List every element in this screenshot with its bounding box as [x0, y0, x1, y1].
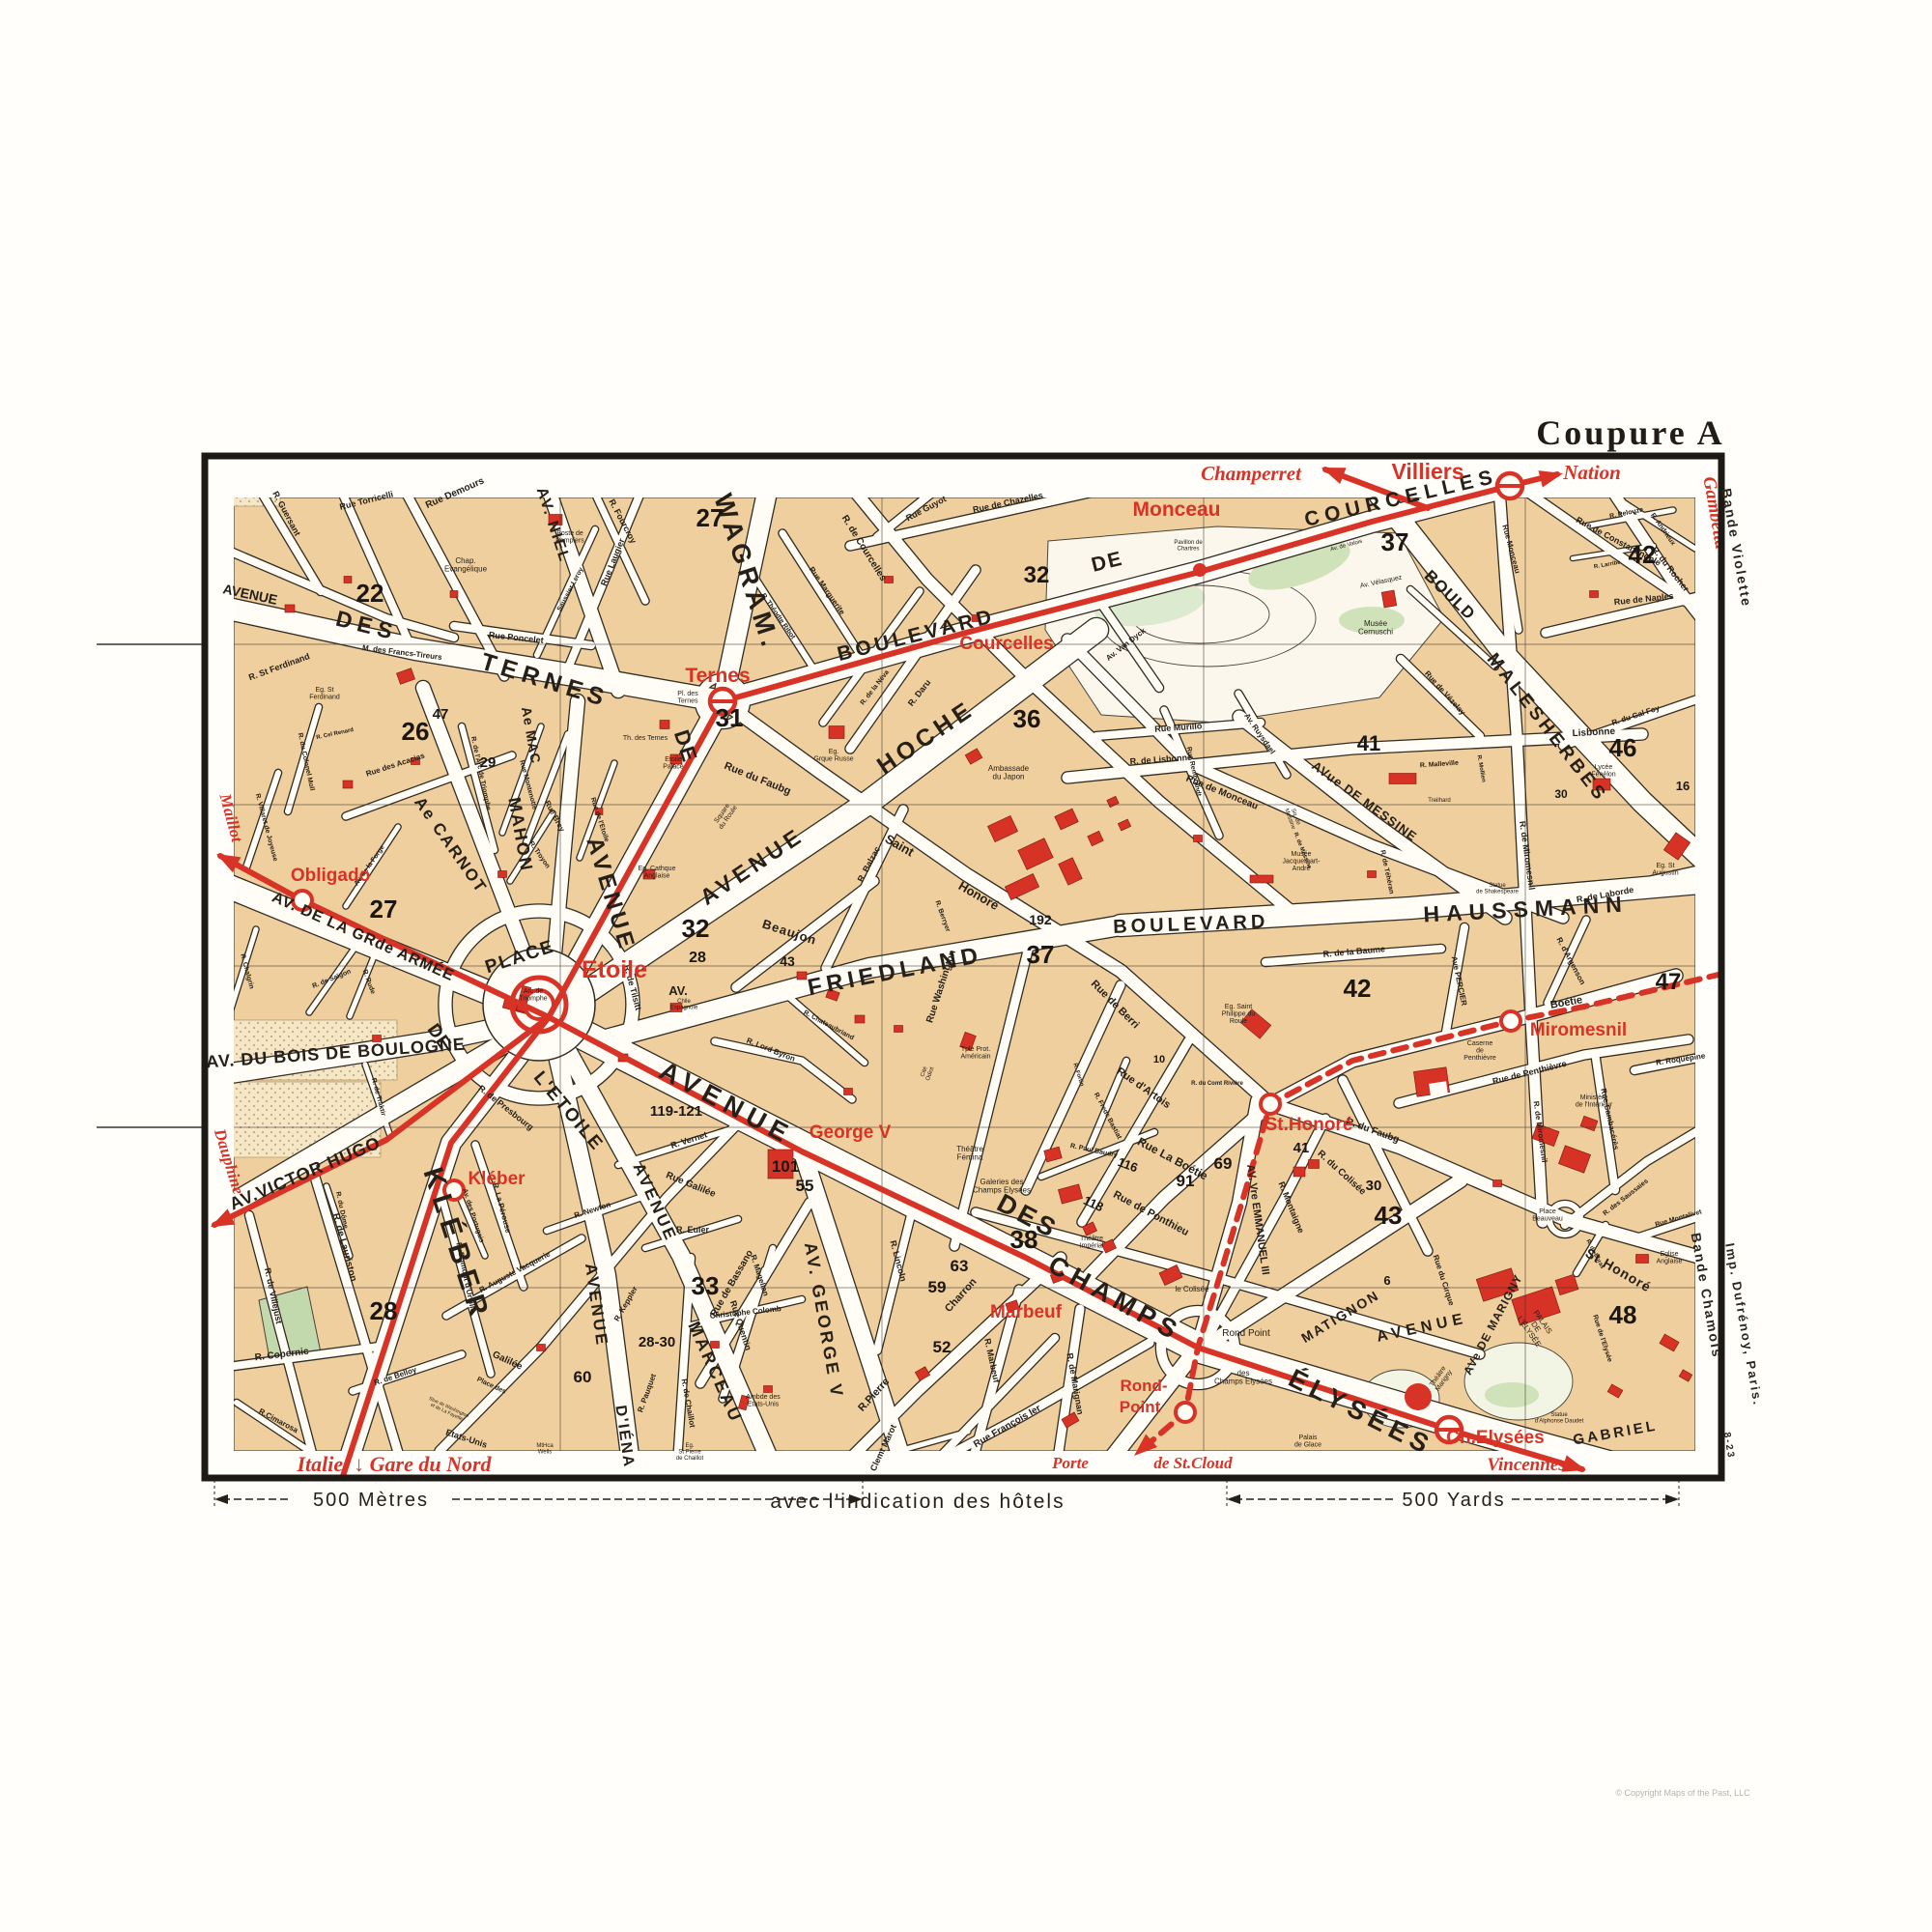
district-number: 28 — [689, 950, 706, 966]
building-marker — [764, 1386, 773, 1393]
landmark-label: Treilhard — [1428, 798, 1450, 804]
building-courtyard — [1429, 1081, 1448, 1095]
district-number: 27 — [696, 503, 724, 532]
station-dot — [1193, 563, 1207, 577]
district-number: 32 — [682, 914, 710, 943]
landmark-label: Ambassadedu Japon — [988, 764, 1030, 781]
landmark-label: Tple Prot.Américain — [960, 1046, 990, 1061]
building-marker — [855, 1015, 865, 1023]
transit-station-label: St.Honoré — [1265, 1115, 1353, 1135]
district-number: 30 — [1366, 1178, 1382, 1194]
transit-station-label: de St.Cloud — [1153, 1454, 1233, 1472]
landmark-label: Rond Point — [1222, 1328, 1270, 1339]
street-label: AV. — [668, 983, 688, 998]
district-number: 38 — [1010, 1225, 1038, 1254]
transit-station-label: Miromesnil — [1530, 1020, 1627, 1040]
landmark-label: ThéâtreImpérial — [1080, 1236, 1104, 1250]
copyright-note: © Copyright Maps of the Past, LLC — [1615, 1788, 1750, 1798]
station-stop — [1176, 1403, 1195, 1422]
building-marker — [1493, 1180, 1502, 1187]
building-marker — [1250, 875, 1273, 883]
building-marker — [660, 721, 669, 729]
district-number: 6 — [1383, 1273, 1390, 1288]
station-stop — [1261, 1094, 1280, 1114]
district-number: 37 — [1027, 940, 1055, 969]
district-number: 37 — [1381, 527, 1409, 556]
building-marker — [1636, 1255, 1649, 1264]
district-number: 32 — [1024, 562, 1050, 588]
transit-arrow — [207, 1208, 235, 1235]
transit-station-label: Obligado — [291, 866, 370, 886]
generated-map-content: AVENUEDESTERNESWAGRAM.DEAVENUEAe MACMAHO… — [97, 452, 1761, 1479]
landmark-label: Ambde desEtats-Unis — [746, 1394, 781, 1408]
transit-station-label: Nation — [1562, 461, 1621, 484]
district-number: 69 — [1214, 1154, 1233, 1173]
transit-station-label: Courcelles — [959, 634, 1053, 654]
building-marker — [844, 1089, 853, 1095]
street-label: R. du Comt Rivière — [1191, 1081, 1243, 1087]
building-marker — [1389, 774, 1416, 784]
transit-station-label: Ternes — [685, 665, 750, 687]
building-marker — [1590, 591, 1599, 598]
transit-station-label: Etoile — [582, 956, 647, 983]
map-page: AVENUEDESTERNESWAGRAM.DEAVENUEAe MACMAHO… — [0, 0, 1932, 1932]
district-number: 22 — [356, 579, 384, 608]
building-marker — [1309, 1160, 1320, 1169]
transit-station-label: Vincennes — [1487, 1455, 1565, 1475]
district-number: 43 — [1375, 1201, 1403, 1230]
district-number: 46 — [1609, 733, 1637, 762]
building-marker — [895, 1026, 903, 1033]
district-number: 36 — [1013, 704, 1041, 733]
landmark-label: Th. des Ternes — [623, 735, 668, 742]
district-number: 52 — [933, 1338, 952, 1356]
building-marker — [1368, 871, 1377, 878]
transit-station-label: Point — [1120, 1398, 1161, 1416]
district-number: 43 — [780, 953, 795, 969]
building-marker — [343, 781, 353, 788]
transit-station-label: Villiers — [1391, 459, 1463, 484]
building-marker — [1293, 1167, 1305, 1177]
district-number: 101 — [772, 1157, 799, 1176]
district-number: 28-30 — [639, 1334, 675, 1350]
station-stop — [1501, 1011, 1520, 1031]
district-number: 47 — [433, 706, 449, 723]
transit-station-label: Monceau — [1132, 498, 1220, 521]
landmark-label: le Colisée — [1175, 1285, 1209, 1293]
theatre-marigny-dot — [1405, 1383, 1432, 1410]
district-number: 30 — [1554, 787, 1568, 801]
building-marker — [285, 605, 295, 612]
district-number: 16 — [1676, 779, 1690, 793]
scale-arrow — [1227, 1494, 1240, 1504]
district-number: 91 — [1177, 1172, 1195, 1190]
district-number: 10 — [1153, 1054, 1165, 1065]
district-number: 60 — [574, 1368, 592, 1386]
scale-arrow — [214, 1494, 228, 1504]
transit-station-label: Marbeuf — [990, 1302, 1063, 1322]
district-number: 48 — [1609, 1300, 1637, 1329]
district-number: 47 — [1656, 969, 1682, 995]
transit-station-label: Champerret — [1201, 462, 1302, 485]
landmark-label: Ministèrede l'Intérieur — [1576, 1094, 1613, 1109]
landmark-label: ThéâtreFémina — [956, 1145, 983, 1162]
building-marker — [829, 726, 844, 739]
building-marker — [1381, 590, 1397, 608]
building-marker — [344, 577, 352, 583]
landmark-label: Pl. desTernes — [677, 691, 698, 705]
scale-arrow — [1665, 1494, 1679, 1504]
landmark-label: EtoilePalace — [663, 756, 684, 771]
district-number: 29 — [480, 754, 497, 771]
building-marker — [450, 591, 458, 598]
edge-label-imprint: Imp. Dufrénoy, Paris. — [1722, 1242, 1765, 1407]
map-title: Coupure A — [1536, 413, 1724, 452]
landmark-label: Poste dePompiers — [555, 530, 584, 545]
transit-arrow — [1319, 460, 1347, 484]
district-number: 42 — [1629, 540, 1657, 569]
district-number: 119-121 — [650, 1103, 702, 1120]
park-detail — [1485, 1382, 1539, 1407]
building-marker — [498, 871, 507, 878]
transit-station-label: Kléber — [468, 1169, 526, 1189]
district-number: 28 — [370, 1296, 398, 1325]
transit-station-label: Ch.Elysées — [1446, 1428, 1544, 1448]
scale-yards-label: 500 Yards — [1402, 1490, 1505, 1511]
district-number: 41 — [1293, 1140, 1310, 1156]
district-number: 63 — [951, 1257, 969, 1275]
landmark-label: MtHcaWells — [536, 1443, 554, 1455]
district-number: 192 — [1029, 912, 1052, 927]
district-number: 55 — [796, 1177, 814, 1195]
district-number: 59 — [928, 1278, 947, 1296]
building-marker — [1194, 836, 1203, 842]
district-number: 27 — [370, 895, 398, 923]
transit-station-label: George V — [810, 1122, 892, 1143]
landmark-label: Galeries desChamps Elysées — [973, 1178, 1031, 1195]
map-caption: avec l'indication des hôtels — [770, 1491, 1065, 1513]
landmark-label: EgliseAnglaise — [1657, 1251, 1683, 1265]
scale-metres-label: 500 Mètres — [313, 1490, 429, 1511]
paris-map-canvas: AVENUEDESTERNESWAGRAM.DEAVENUEAe MACMAHO… — [0, 0, 1932, 1932]
district-number: 26 — [402, 717, 430, 746]
district-number: 33 — [692, 1271, 720, 1300]
transit-station-label: Italie, ↓ Gare du Nord — [296, 1452, 492, 1476]
district-number: 41 — [1357, 731, 1380, 755]
landmark-label: Pavillon deChartres — [1174, 540, 1203, 552]
transit-station-label: Porte — [1051, 1454, 1089, 1472]
building-marker — [537, 1345, 546, 1351]
district-number: 31 — [716, 703, 744, 732]
district-number: 42 — [1344, 974, 1372, 1003]
building-marker — [817, 1463, 829, 1471]
transit-arrow — [1539, 465, 1566, 487]
street-label: R. Euler — [676, 1225, 710, 1235]
transit-station-label: Rond- — [1120, 1377, 1167, 1395]
landmark-label: LycéeFénélon — [1591, 764, 1615, 779]
building-marker — [389, 478, 403, 488]
